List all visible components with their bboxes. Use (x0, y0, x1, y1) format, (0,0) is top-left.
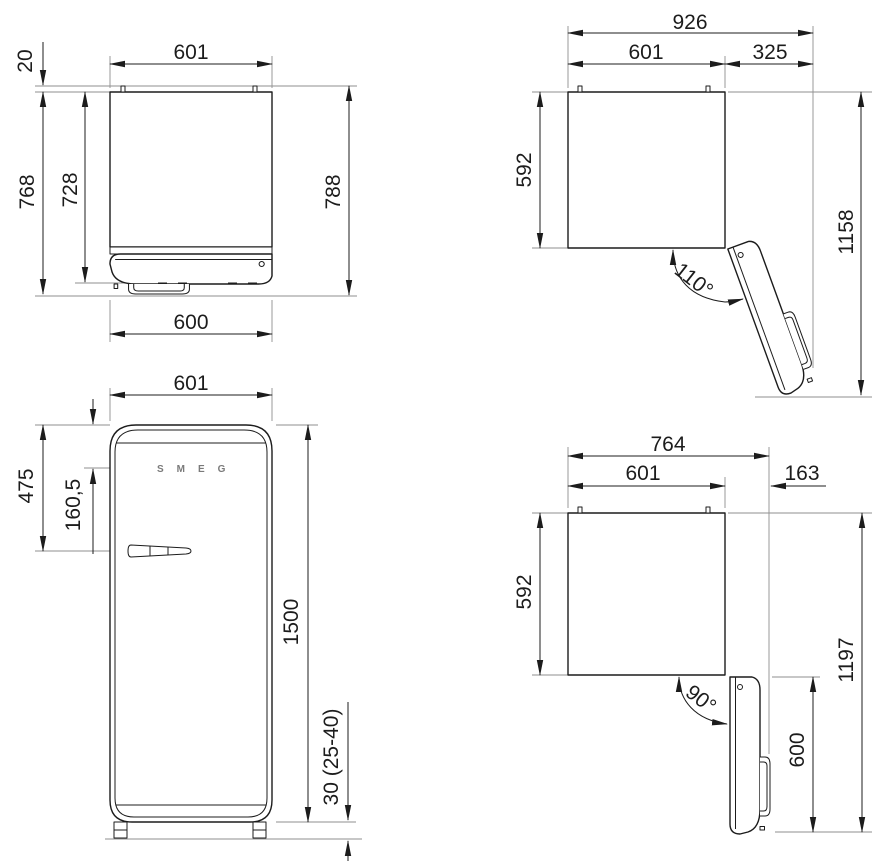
fridge-dimension-drawing: 601 20 768 728 788 600 110° 926 601 325 … (0, 0, 890, 866)
dim-body-width: 601 (628, 41, 663, 64)
dim-height: 1500 (280, 599, 303, 646)
dim-feet-height: 30 (25-40) (320, 709, 343, 806)
cabinet-body (568, 92, 725, 248)
door-gasket-band (110, 247, 272, 254)
dim-overall-width: 926 (672, 11, 707, 34)
dim-body-depth: 592 (513, 152, 536, 187)
rear-spacer-left (121, 86, 125, 92)
cabinet-body (568, 513, 725, 675)
cabinet-front (110, 425, 272, 822)
dim-width-top: 601 (173, 41, 208, 64)
dim-body-depth: 592 (513, 574, 536, 609)
view-top-closed: 601 20 768 728 788 600 (14, 41, 357, 342)
dim-body-width: 601 (625, 462, 660, 485)
rear-spacer-left (578, 86, 582, 92)
dim-overall-depth: 1197 (835, 637, 858, 682)
dim-overall-depth: 1158 (835, 209, 858, 254)
dim-depth-incl-handle: 768 (16, 174, 39, 209)
dim-width-front: 600 (173, 311, 208, 334)
brand-logo: SMEG (157, 464, 238, 475)
view-front: SMEG 601 475 160,5 1500 30 (25-40) (15, 372, 362, 861)
dim-opening-angle: 110° (670, 258, 717, 302)
dim-door-projection: 325 (752, 41, 787, 64)
dim-rear-spacer: 20 (14, 49, 37, 72)
rear-spacer-right (253, 86, 257, 92)
dim-opening-angle: 90° (681, 681, 720, 719)
dim-depth-excl-handle: 728 (59, 172, 82, 207)
dimension-drawing-page: 601 20 768 728 788 600 110° 926 601 325 … (0, 0, 890, 866)
view-top-open-90: 90° 764 601 163 592 1197 600 (513, 433, 872, 834)
dim-overall-width: 764 (650, 433, 685, 456)
dim-depth-overall: 788 (322, 174, 345, 209)
rear-spacer-left (578, 507, 582, 513)
dim-door-width: 600 (786, 732, 809, 767)
dim-door-projection: 163 (784, 462, 819, 485)
dim-logo-from-top: 160,5 (62, 479, 85, 532)
rear-spacer-right (706, 86, 710, 92)
adjustable-feet (114, 822, 266, 838)
view-top-open-110: 110° 926 601 325 592 1158 (513, 11, 872, 397)
dim-width: 601 (173, 372, 208, 395)
rear-spacer-right (706, 507, 710, 513)
cabinet-body (110, 92, 272, 247)
dim-handle-from-top: 475 (15, 468, 38, 503)
